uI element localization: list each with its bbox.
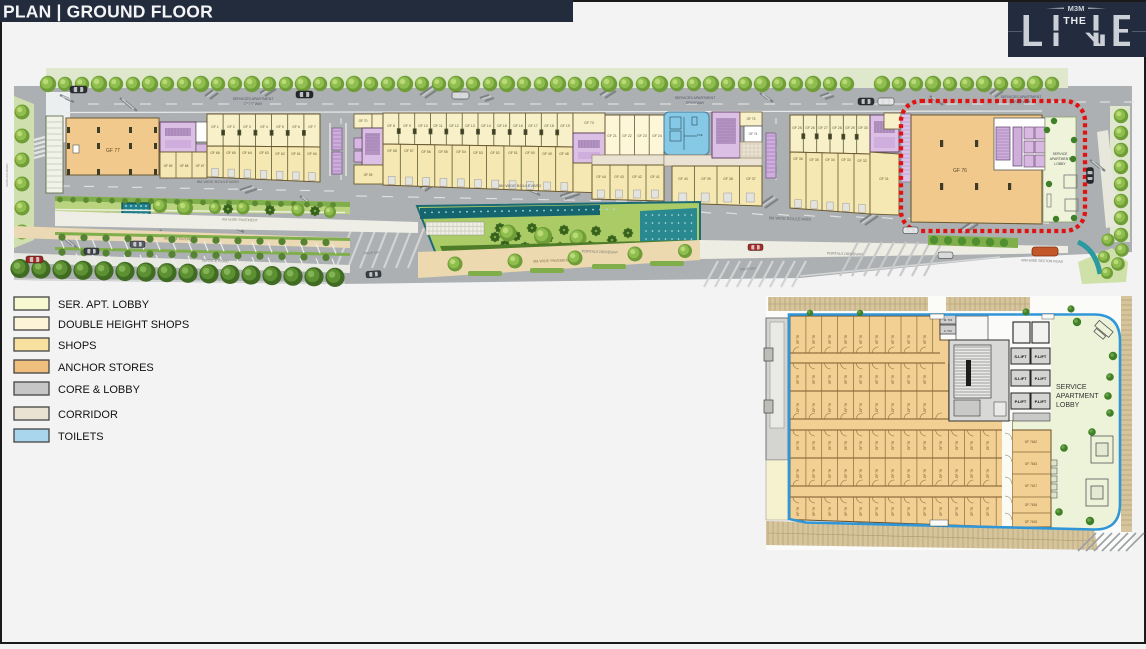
svg-text:GF 65: GF 65: [226, 151, 236, 155]
svg-text:GF 58: GF 58: [387, 149, 397, 153]
svg-text:P.LIFT: P.LIFT: [1015, 399, 1027, 404]
svg-text:GF 76: GF 76: [955, 507, 959, 516]
svg-text:GF 76: GF 76: [955, 441, 959, 450]
svg-text:LOBBY: LOBBY: [1054, 162, 1066, 166]
svg-text:GF 76: GF 76: [875, 335, 879, 344]
svg-text:GF 75: GF 75: [747, 117, 756, 121]
svg-text:GF 52: GF 52: [490, 151, 500, 155]
svg-text:8M WIDE BOULEVARD: 8M WIDE BOULEVARD: [499, 183, 542, 188]
svg-text:GF 21: GF 21: [607, 134, 617, 138]
svg-text:GF 76: GF 76: [907, 441, 911, 450]
svg-text:GF 12: GF 12: [449, 124, 459, 128]
svg-text:GF 16: GF 16: [513, 124, 523, 128]
svg-text:GF 76: GF 76: [907, 507, 911, 516]
svg-text:GF 51: GF 51: [508, 151, 518, 155]
svg-text:GF 1: GF 1: [211, 125, 219, 129]
svg-text:TOIL: TOIL: [697, 133, 703, 137]
svg-text:S.LIFT: S.LIFT: [1014, 354, 1027, 359]
svg-text:GF 17: GF 17: [528, 124, 538, 128]
svg-text:GF 76: GF 76: [812, 335, 816, 344]
svg-text:GF 5: GF 5: [276, 125, 284, 129]
svg-text:GF 28: GF 28: [832, 126, 842, 130]
svg-text:GF 76: GF 76: [859, 441, 863, 450]
svg-text:SERVICE: SERVICE: [1056, 384, 1087, 391]
svg-text:ANCHOR STORES: ANCHOR STORES: [58, 362, 154, 374]
svg-text:GF 76: GF 76: [970, 441, 974, 450]
svg-text:GF 76: GF 76: [907, 469, 911, 478]
svg-text:GF 76: GF 76: [986, 469, 990, 478]
svg-text:DRIVEWAY: DRIVEWAY: [244, 102, 263, 106]
svg-text:APARTMENT: APARTMENT: [1056, 393, 1099, 400]
svg-text:GF 57: GF 57: [404, 149, 414, 153]
svg-text:APARTMENT: APARTMENT: [1050, 157, 1071, 161]
svg-text:GF 60: GF 60: [307, 152, 317, 156]
svg-text:GF 55: GF 55: [438, 150, 448, 154]
svg-text:GF 18: GF 18: [544, 124, 554, 128]
svg-text:GF 76: GF 76: [828, 441, 832, 450]
svg-text:GF 76: GF 76: [891, 469, 895, 478]
svg-text:GF 76: GF 76: [859, 507, 863, 516]
svg-text:GF 76: GF 76: [844, 375, 848, 384]
svg-text:GF 76: GF 76: [907, 375, 911, 384]
svg-text:CORRIDOR: CORRIDOR: [58, 409, 118, 421]
svg-text:GF 27: GF 27: [818, 126, 828, 130]
svg-text:GF 76: GF 76: [875, 441, 879, 450]
svg-text:GF 48: GF 48: [559, 152, 569, 156]
svg-text:M. TOI: M. TOI: [944, 318, 953, 322]
svg-text:GF 64: GF 64: [242, 151, 252, 155]
svg-text:GF 35: GF 35: [809, 158, 819, 162]
svg-text:M3M: M3M: [1068, 4, 1085, 13]
svg-text:GF 76: GF 76: [923, 335, 927, 344]
svg-text:GF 25: GF 25: [792, 126, 802, 130]
svg-text:GF 23: GF 23: [637, 134, 647, 138]
svg-text:P.LIFT: P.LIFT: [1035, 399, 1047, 404]
svg-text:GF 76: GF 76: [796, 441, 800, 450]
svg-text:SER. APT. LOBBY: SER. APT. LOBBY: [58, 299, 150, 311]
svg-text:GF 22: GF 22: [622, 134, 632, 138]
svg-text:SERVICE: SERVICE: [1053, 152, 1069, 156]
svg-text:GF 76: GF 76: [970, 507, 974, 516]
svg-text:8M WIDE BOULEVARD: 8M WIDE BOULEVARD: [197, 179, 240, 184]
svg-text:GF 53: GF 53: [473, 151, 483, 155]
svg-text:GF 76: GF 76: [859, 335, 863, 344]
svg-text:GF 76: GF 76: [812, 469, 816, 478]
svg-text:GF 76: GF 76: [796, 375, 800, 384]
svg-text:GF 76: GF 76: [828, 507, 832, 516]
svg-text:GF 76: GF 76: [923, 403, 927, 412]
svg-text:GF 74: GF 74: [749, 132, 758, 136]
svg-text:P.LIFT: P.LIFT: [1035, 354, 1047, 359]
svg-text:GF 66: GF 66: [210, 151, 220, 155]
svg-text:GF 73: GF 73: [584, 121, 594, 125]
svg-text:GF 26: GF 26: [805, 126, 815, 130]
svg-text:GF 39: GF 39: [701, 177, 711, 181]
svg-text:GF 70: GF 70: [359, 119, 368, 123]
svg-text:GF 63: GF 63: [259, 151, 269, 155]
svg-text:GF 76: GF 76: [812, 507, 816, 516]
svg-text:GF 76: GF 76: [891, 375, 895, 384]
svg-text:TOILETS: TOILETS: [58, 431, 104, 443]
svg-text:PLAN | GROUND FLOOR: PLAN | GROUND FLOOR: [3, 2, 213, 22]
svg-text:GF 10: GF 10: [418, 124, 428, 128]
svg-text:SHOPS: SHOPS: [58, 340, 97, 352]
svg-text:GF 76: GF 76: [844, 507, 848, 516]
svg-text:GF 7643: GF 7643: [1025, 462, 1038, 466]
svg-text:GF 14: GF 14: [481, 124, 491, 128]
svg-text:GF 61: GF 61: [291, 152, 301, 156]
svg-text:DRIVEWAY: DRIVEWAY: [686, 101, 705, 105]
svg-text:GF 43: GF 43: [614, 175, 624, 179]
svg-text:GF 11: GF 11: [433, 124, 442, 128]
svg-text:GF 50: GF 50: [525, 151, 535, 155]
svg-text:GF 76: GF 76: [844, 335, 848, 344]
svg-text:GF 49: GF 49: [542, 152, 552, 156]
svg-text:SERVICES APARTMENT: SERVICES APARTMENT: [675, 96, 717, 100]
svg-text:GF 13: GF 13: [465, 124, 475, 128]
svg-text:GF 76: GF 76: [955, 469, 959, 478]
svg-text:GF 76: GF 76: [828, 375, 832, 384]
svg-text:GF 6: GF 6: [292, 125, 300, 129]
svg-text:GF 76: GF 76: [796, 507, 800, 516]
svg-text:GF 76: GF 76: [891, 507, 895, 516]
svg-text:GF 40: GF 40: [678, 177, 688, 181]
svg-text:GF 76: GF 76: [907, 335, 911, 344]
svg-text:GF 76: GF 76: [939, 507, 943, 516]
svg-text:GF 2: GF 2: [227, 125, 235, 129]
svg-text:GF 76: GF 76: [828, 469, 832, 478]
svg-text:GF 76: GF 76: [875, 375, 879, 384]
svg-text:GF 69: GF 69: [164, 164, 173, 168]
svg-text:GF 76: GF 76: [796, 469, 800, 478]
svg-text:GF 15: GF 15: [497, 124, 507, 128]
svg-text:GF 41: GF 41: [650, 175, 660, 179]
svg-text:GF 76: GF 76: [970, 469, 974, 478]
svg-text:SERVICES APARTMENT: SERVICES APARTMENT: [1001, 95, 1043, 99]
svg-text:GF 7616: GF 7616: [1025, 503, 1038, 507]
svg-text:LOBBY: LOBBY: [1056, 402, 1080, 409]
svg-text:DOUBLE HEIGHT SHOPS: DOUBLE HEIGHT SHOPS: [58, 319, 189, 331]
svg-text:GF 76: GF 76: [859, 375, 863, 384]
svg-text:GF 59: GF 59: [364, 173, 373, 177]
svg-text:GF 67: GF 67: [196, 164, 205, 168]
svg-text:GF 54: GF 54: [456, 150, 466, 154]
svg-text:GF 7: GF 7: [308, 125, 316, 129]
svg-text:GF 76: GF 76: [907, 403, 911, 412]
svg-text:GF 76: GF 76: [891, 441, 895, 450]
svg-text:GF 76: GF 76: [828, 403, 832, 412]
svg-text:GF 76: GF 76: [875, 469, 879, 478]
svg-text:GF 9: GF 9: [403, 124, 411, 128]
svg-text:GF 76: GF 76: [812, 403, 816, 412]
svg-text:GF 76: GF 76: [923, 507, 927, 516]
svg-text:GF 7642: GF 7642: [1025, 440, 1038, 444]
svg-text:GF 36: GF 36: [793, 157, 803, 161]
svg-text:GF 33: GF 33: [841, 158, 851, 162]
svg-text:GF 42: GF 42: [632, 175, 642, 179]
svg-text:GF 76: GF 76: [986, 507, 990, 516]
svg-text:GF 77: GF 77: [106, 148, 120, 154]
svg-text:P.LIFT: P.LIFT: [1035, 376, 1047, 381]
svg-text:F. TOI: F. TOI: [944, 329, 952, 333]
svg-text:GF 76: GF 76: [828, 335, 832, 344]
svg-text:GF 76: GF 76: [986, 441, 990, 450]
svg-text:GF 7615: GF 7615: [1025, 520, 1038, 524]
svg-text:GF 76: GF 76: [859, 469, 863, 478]
svg-text:GF 62: GF 62: [275, 152, 285, 156]
svg-text:GF 76: GF 76: [953, 168, 967, 174]
svg-text:GF 4: GF 4: [260, 125, 268, 129]
svg-text:GF 76: GF 76: [796, 335, 800, 344]
svg-text:GF 56: GF 56: [421, 150, 431, 154]
svg-text:SERVICES APARTMENT: SERVICES APARTMENT: [233, 97, 275, 101]
svg-text:THE: THE: [1063, 15, 1086, 27]
svg-text:GF 37: GF 37: [746, 177, 756, 181]
svg-text:GF 76: GF 76: [812, 375, 816, 384]
svg-text:GF 24: GF 24: [652, 134, 662, 138]
svg-text:GF 8: GF 8: [387, 124, 395, 128]
svg-text:GF 76: GF 76: [844, 403, 848, 412]
svg-text:DRIVEWAY: DRIVEWAY: [1012, 100, 1031, 104]
svg-text:GF 34: GF 34: [825, 158, 835, 162]
svg-text:GF 19: GF 19: [560, 124, 570, 128]
svg-text:GF 68: GF 68: [180, 164, 189, 168]
svg-text:GF 76: GF 76: [923, 441, 927, 450]
svg-text:GF 32: GF 32: [857, 159, 867, 163]
svg-text:GF 30: GF 30: [858, 126, 868, 130]
svg-text:GF 38: GF 38: [723, 177, 733, 181]
svg-text:GF 76: GF 76: [923, 375, 927, 384]
svg-text:KRISHAN MARG: KRISHAN MARG: [5, 163, 9, 187]
svg-text:GF 76: GF 76: [844, 441, 848, 450]
svg-text:GF 76: GF 76: [939, 469, 943, 478]
svg-text:GF 76: GF 76: [891, 403, 895, 412]
svg-text:GF 76: GF 76: [891, 335, 895, 344]
svg-text:GF 76: GF 76: [796, 403, 800, 412]
svg-text:GF 76: GF 76: [875, 507, 879, 516]
svg-text:GF 76: GF 76: [844, 469, 848, 478]
svg-text:GF 76: GF 76: [875, 403, 879, 412]
svg-text:GF 7617: GF 7617: [1025, 484, 1038, 488]
svg-text:S.LIFT: S.LIFT: [1014, 376, 1027, 381]
svg-text:GF 3: GF 3: [243, 125, 251, 129]
svg-text:GF 76: GF 76: [812, 441, 816, 450]
svg-text:GF 29: GF 29: [845, 126, 855, 130]
svg-text:CORE & LOBBY: CORE & LOBBY: [58, 384, 141, 396]
svg-text:GF 76: GF 76: [859, 403, 863, 412]
svg-text:GF 76: GF 76: [923, 469, 927, 478]
svg-text:GF 31: GF 31: [879, 177, 889, 181]
svg-text:GF 76: GF 76: [939, 441, 943, 450]
svg-text:GF 44: GF 44: [596, 175, 606, 179]
